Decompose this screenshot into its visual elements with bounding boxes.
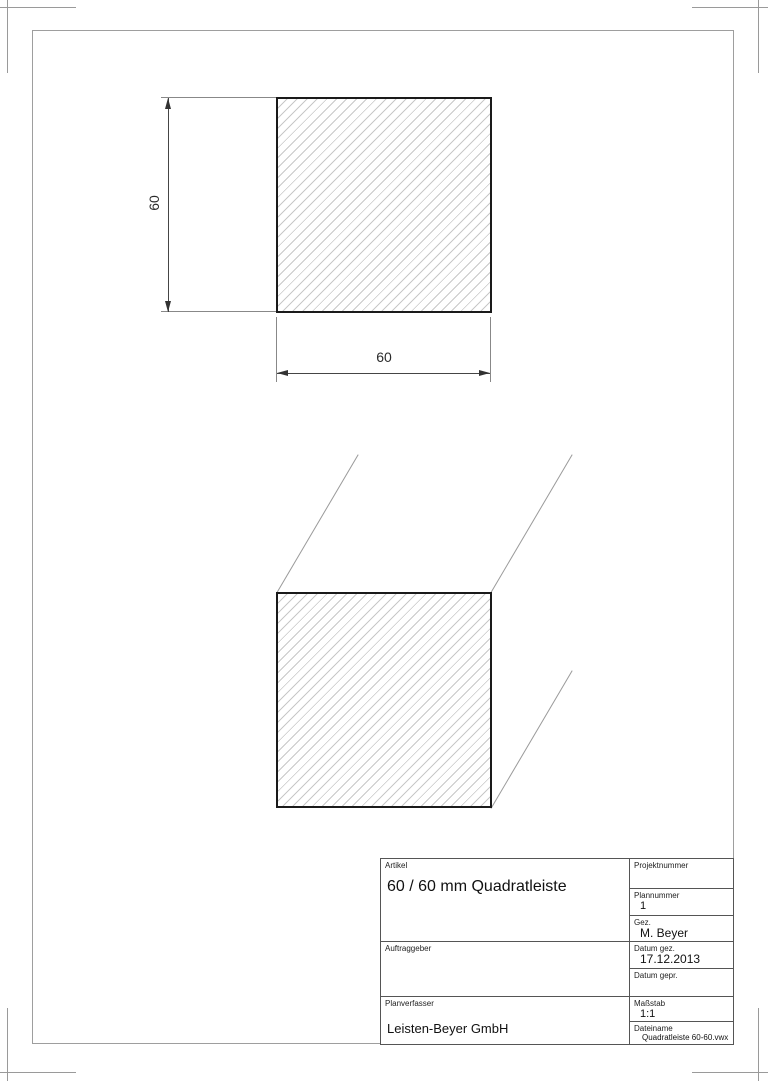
trim-mark-top-right-h: [692, 7, 768, 8]
field-projektnummer: Projektnummer: [629, 859, 733, 888]
extension-line-top: [161, 97, 276, 98]
field-gez: Gez. M. Beyer: [629, 915, 733, 941]
trim-mark-top-right-v: [758, 0, 759, 73]
field-artikel-label: Artikel: [385, 861, 625, 870]
drawing-sheet: 60 60 Artikel 60 / 60 mm Quadratleiste P…: [0, 0, 768, 1081]
arrowhead-left-icon: [277, 370, 288, 376]
field-auftraggeber-label: Auftraggeber: [385, 944, 625, 953]
trim-mark-bottom-right-v: [758, 1008, 759, 1081]
width-dimension-label: 60: [364, 349, 404, 365]
field-plannummer-label: Plannummer: [634, 891, 729, 900]
trim-mark-bottom-right-h: [692, 1072, 768, 1073]
dimension-line-vertical: [168, 98, 169, 312]
trim-mark-top-left-h: [0, 7, 76, 8]
arrowhead-down-icon: [165, 301, 171, 312]
height-dimension-label: 60: [146, 183, 162, 223]
trim-mark-bottom-left-v: [7, 1008, 8, 1081]
dimension-line-horizontal: [277, 373, 490, 374]
field-projektnummer-label: Projektnummer: [634, 861, 729, 870]
field-gez-value: M. Beyer: [634, 927, 729, 940]
extension-line-right: [490, 317, 491, 382]
field-artikel: Artikel 60 / 60 mm Quadratleiste: [381, 859, 629, 941]
field-artikel-value: 60 / 60 mm Quadratleiste: [385, 870, 625, 893]
field-planverfasser: Planverfasser Leisten-Beyer GmbH: [381, 996, 629, 1044]
field-dateiname: Dateiname Quadratleiste 60-60.vwx: [629, 1021, 733, 1044]
field-plannummer: Plannummer 1: [629, 888, 733, 915]
field-datum-gepr: Datum gepr.: [629, 968, 733, 996]
field-massstab-value: 1:1: [634, 1008, 729, 1021]
trim-mark-bottom-left-h: [0, 1072, 76, 1073]
arrowhead-right-icon: [479, 370, 490, 376]
field-massstab-label: Maßstab: [634, 999, 729, 1008]
isometric-front-face: [276, 592, 492, 808]
extension-line-bottom: [161, 311, 276, 312]
field-datum-gez: Datum gez. 17.12.2013: [629, 941, 733, 968]
field-datum-gez-value: 17.12.2013: [634, 953, 729, 966]
title-block: Artikel 60 / 60 mm Quadratleiste Projekt…: [380, 858, 734, 1045]
field-dateiname-label: Dateiname: [634, 1024, 729, 1033]
field-planverfasser-value: Leisten-Beyer GmbH: [385, 1008, 625, 1035]
arrowhead-up-icon: [165, 98, 171, 109]
cross-section-square: [276, 97, 492, 313]
field-auftraggeber: Auftraggeber: [381, 941, 629, 996]
field-massstab: Maßstab 1:1: [629, 996, 733, 1021]
field-planverfasser-label: Planverfasser: [385, 999, 625, 1008]
trim-mark-top-left-v: [7, 0, 8, 73]
field-datum-gepr-label: Datum gepr.: [634, 971, 729, 980]
field-dateiname-value: Quadratleiste 60-60.vwx: [634, 1033, 729, 1042]
field-plannummer-value: 1: [634, 900, 729, 913]
